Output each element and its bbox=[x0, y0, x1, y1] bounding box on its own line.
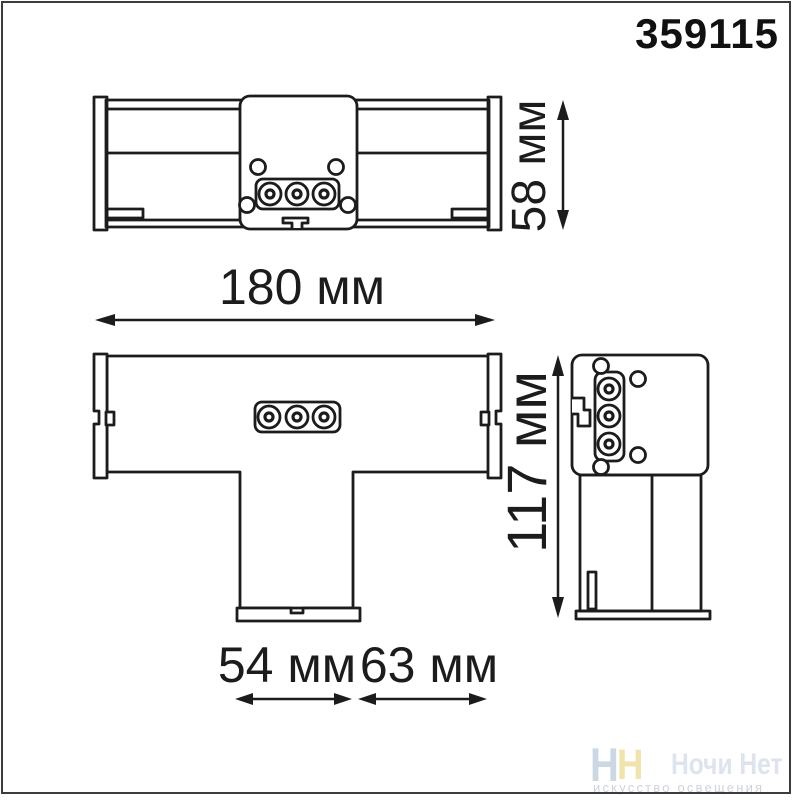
product-drawing-page: 359115 180 мм 58 мм 117 мм 54 мм 63 мм Н… bbox=[0, 0, 800, 800]
front-view bbox=[94, 96, 501, 230]
top-view bbox=[94, 354, 501, 621]
side-base-plate bbox=[576, 611, 710, 619]
dimension-label-stem-offset: 63 мм bbox=[329, 636, 529, 694]
side-view bbox=[572, 355, 710, 619]
article-number: 359115 bbox=[635, 10, 779, 58]
side-body bbox=[580, 475, 701, 611]
watermark-brand-text: Ночи Нет bbox=[671, 748, 783, 782]
watermark: Н Н Ночи Нет искусство освещения bbox=[585, 736, 795, 798]
dimension-label-front-height: 58 мм bbox=[502, 86, 558, 246]
watermark-tagline-text: искусство освещения bbox=[593, 780, 764, 795]
dimension-label-width: 180 мм bbox=[152, 258, 452, 316]
stem-bottom-cap bbox=[237, 608, 360, 621]
dimension-label-depth: 117 мм bbox=[497, 342, 557, 582]
